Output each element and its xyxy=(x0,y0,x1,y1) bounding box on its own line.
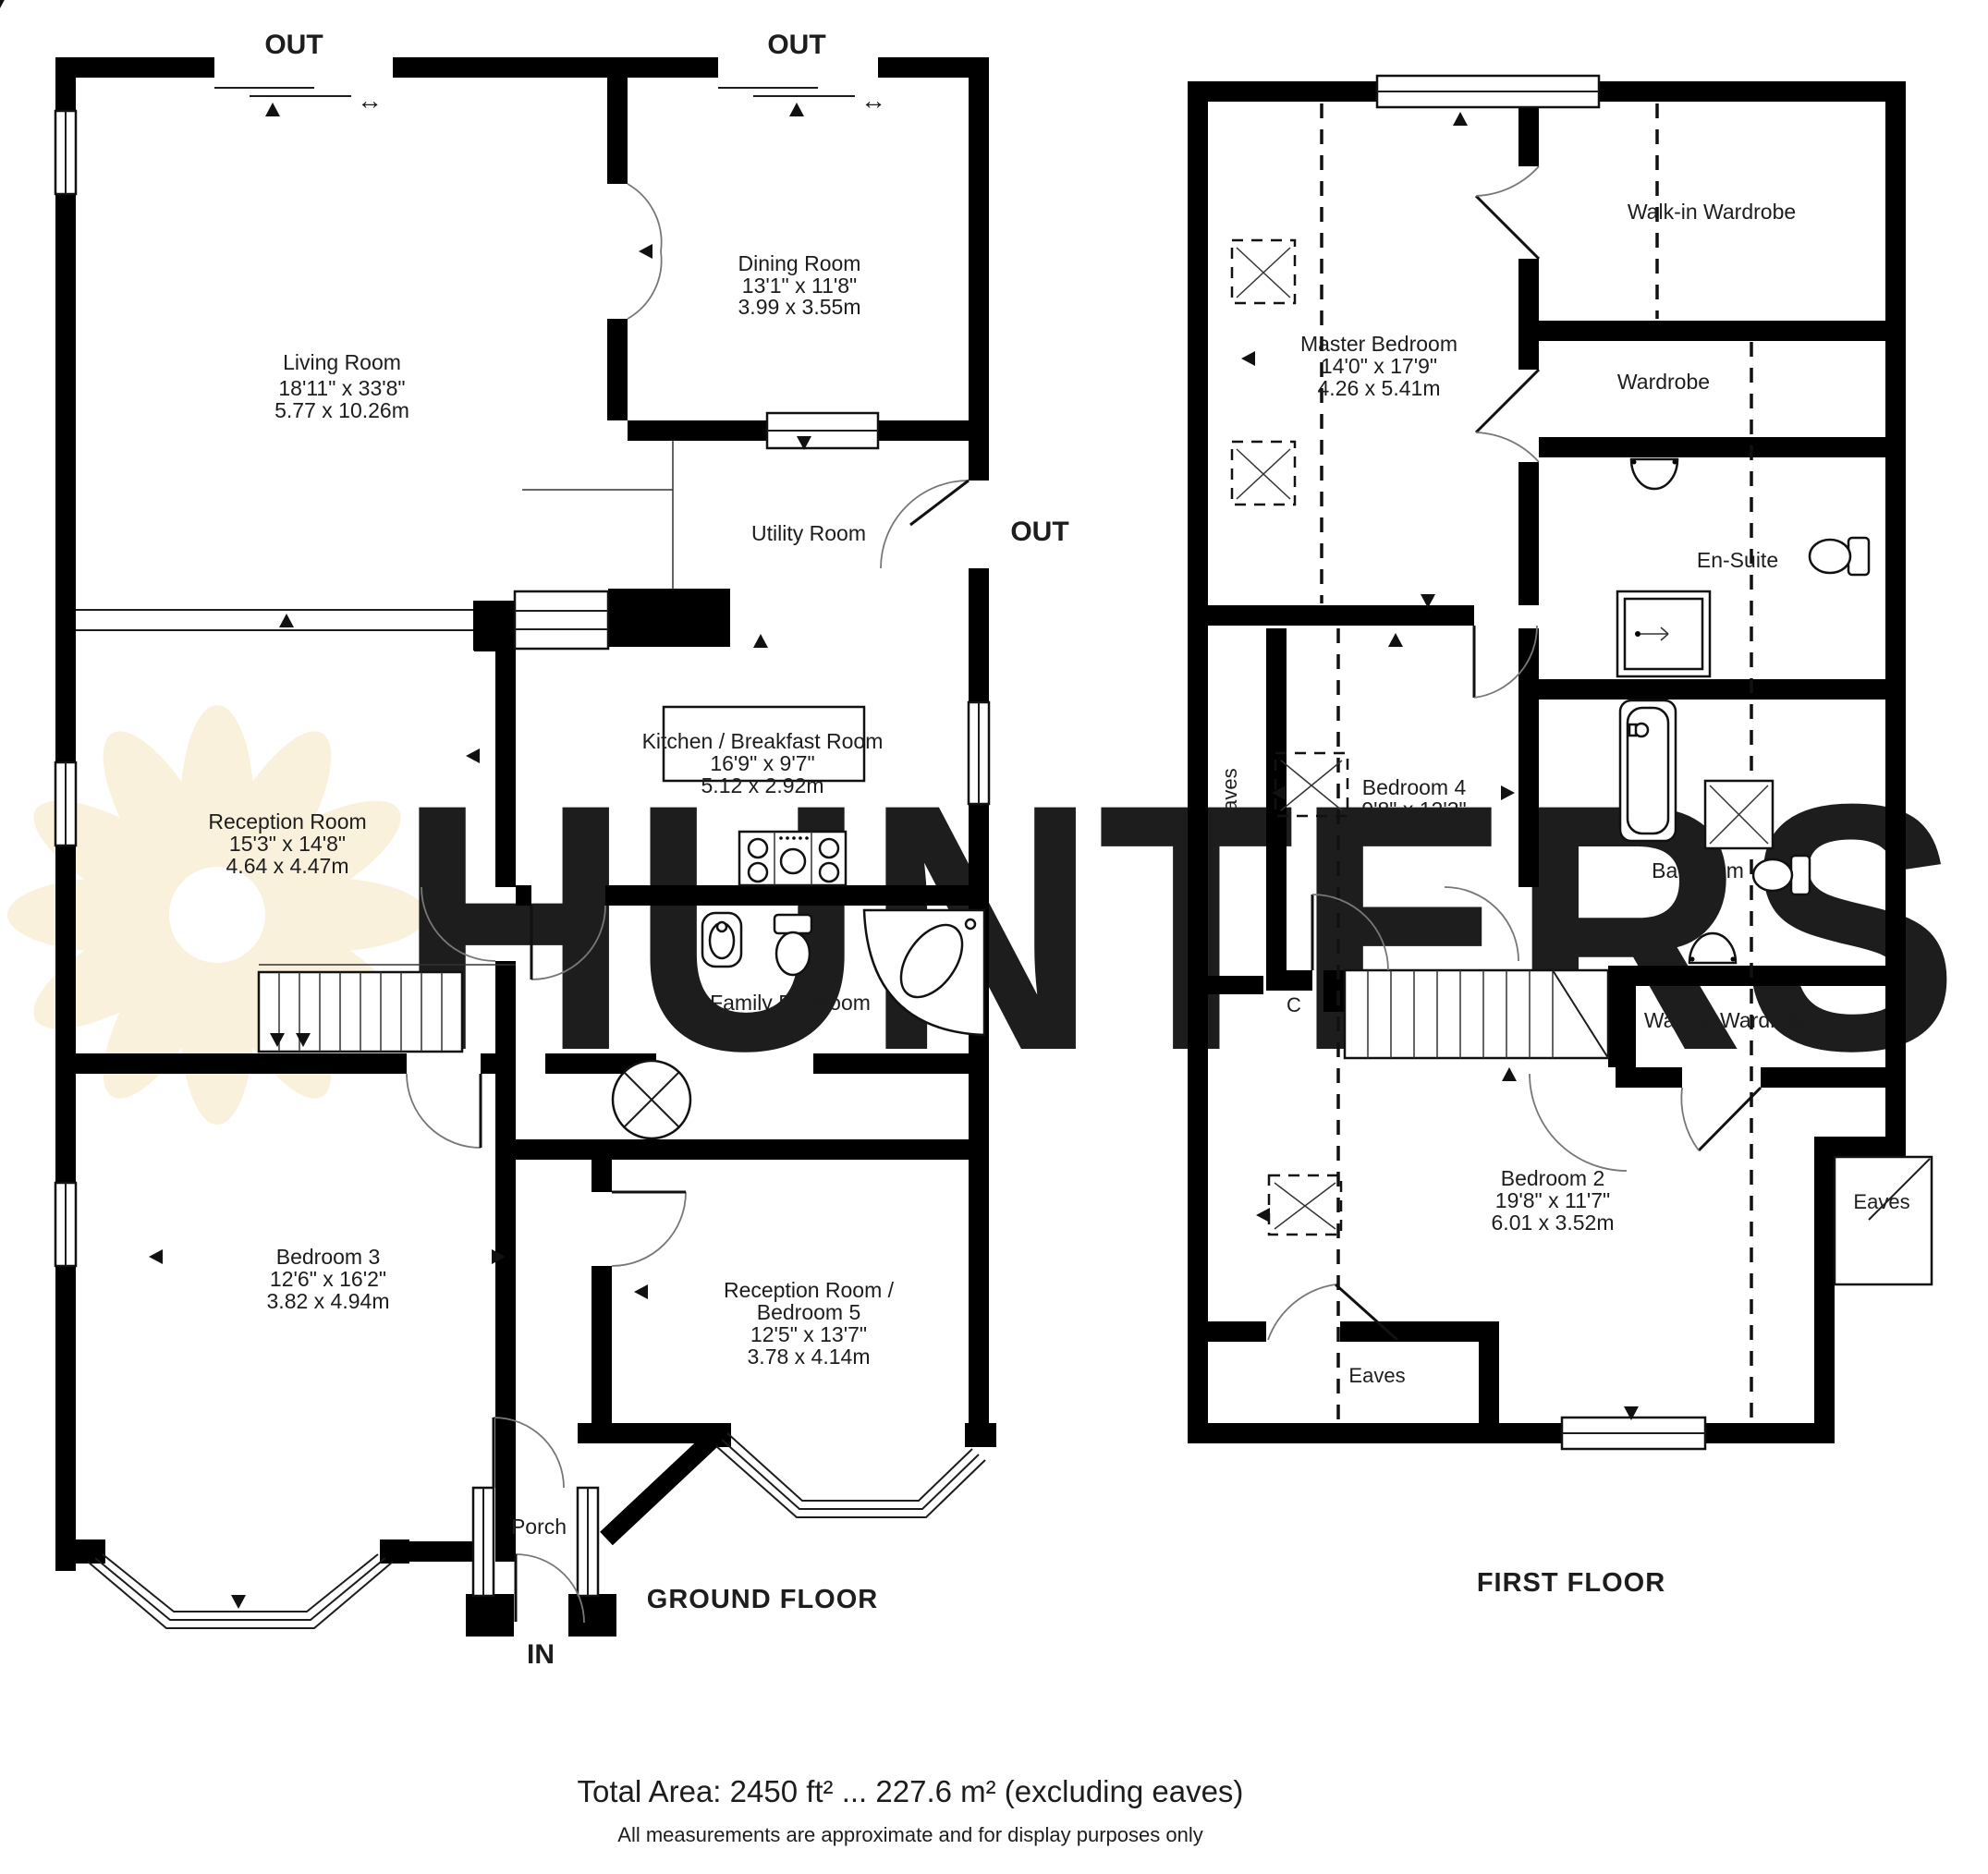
bidet-icon xyxy=(702,913,741,967)
svg-text:Bedroom 3: Bedroom 3 xyxy=(276,1245,381,1269)
extractor-icon xyxy=(613,1061,690,1138)
door-label-out-3: OUT xyxy=(1010,517,1068,547)
svg-text:Reception Room: Reception Room xyxy=(208,809,366,834)
svg-text:Dining Room: Dining Room xyxy=(738,251,861,275)
room-label-bedroom4: Bedroom 4 9'8" x 12'3" 2.93 x 3.75m xyxy=(1353,775,1476,844)
svg-text:14'0" x 17'9": 14'0" x 17'9" xyxy=(1321,354,1437,378)
hob-icon xyxy=(739,832,846,885)
svg-text:9'8" x 12'3": 9'8" x 12'3" xyxy=(1361,797,1466,821)
svg-text:Bedroom 4: Bedroom 4 xyxy=(1362,775,1467,799)
svg-text:15'3" x 14'8": 15'3" x 14'8" xyxy=(229,832,346,856)
toilet-icon xyxy=(774,915,811,975)
eaves-label-bottom: Eaves xyxy=(1348,1364,1405,1387)
svg-text:18'11" x 33'8": 18'11" x 33'8" xyxy=(278,376,405,400)
eaves-label-right: Eaves xyxy=(1853,1190,1909,1213)
svg-text:Reception Room /: Reception Room / xyxy=(724,1278,895,1302)
ensuite-shower-icon xyxy=(1617,591,1710,676)
room-label-bedroom2: Bedroom 2 19'8" x 11'7" 6.01 x 3.52m xyxy=(1492,1166,1615,1235)
svg-text:3.99 x 3.55m: 3.99 x 3.55m xyxy=(738,295,861,319)
ground-floor-title: GROUND FLOOR xyxy=(647,1585,878,1614)
svg-text:12'5" x 13'7": 12'5" x 13'7" xyxy=(750,1322,867,1346)
room-label-reception: Reception Room 15'3" x 14'8" 4.64 x 4.47… xyxy=(208,809,366,878)
svg-text:2.93 x 3.75m: 2.93 x 3.75m xyxy=(1353,820,1476,844)
svg-text:4.64 x 4.47m: 4.64 x 4.47m xyxy=(226,854,349,878)
svg-text:16'9" x 9'7": 16'9" x 9'7" xyxy=(710,751,814,775)
svg-text:Bedroom 2: Bedroom 2 xyxy=(1501,1166,1605,1190)
room-label-family-bathroom: Family Bathroom xyxy=(710,991,871,1015)
svg-text:3.78 x 4.14m: 3.78 x 4.14m xyxy=(748,1345,871,1369)
floorplan-page: HUNTERS xyxy=(0,0,1988,1874)
ensuite-toilet-icon xyxy=(1810,538,1869,575)
door-label-out-2: OUT xyxy=(767,30,825,60)
porch-windows xyxy=(473,1488,598,1596)
room-label-living-room: Living Room 18'11" x 33'8" 5.77 x 10.26m xyxy=(274,350,409,422)
room-label-bedroom3: Bedroom 3 12'6" x 16'2" 3.82 x 4.94m xyxy=(267,1245,390,1313)
svg-text:Bedroom 5: Bedroom 5 xyxy=(757,1300,861,1324)
cupboard-label: C xyxy=(1287,993,1301,1016)
stairs-first xyxy=(1345,970,1608,1058)
room-label-master-bedroom: Master Bedroom 14'0" x 17'9" 4.26 x 5.41… xyxy=(1300,332,1457,400)
slide-arrow-icon: ↔ xyxy=(860,86,886,115)
bathroom-toilet-icon xyxy=(1753,856,1810,894)
bath-icon xyxy=(1620,700,1676,841)
svg-text:5.77 x 10.26m: 5.77 x 10.26m xyxy=(274,398,409,422)
svg-text:5.12 x 2.92m: 5.12 x 2.92m xyxy=(701,773,824,797)
ensuite-sink-icon xyxy=(1631,459,1677,489)
svg-text:3.82 x 4.94m: 3.82 x 4.94m xyxy=(267,1289,390,1313)
bay-window-bed5 xyxy=(716,1433,985,1517)
bay-window-bed3 xyxy=(88,1554,393,1628)
disclaimer-text: All measurements are approximate and for… xyxy=(617,1823,1202,1846)
room-label-ensuite: En-Suite xyxy=(1697,548,1778,572)
first-floor-title: FIRST FLOOR xyxy=(1477,1568,1665,1598)
slide-arrow-icon: ↔ xyxy=(357,86,383,115)
room-label-dining-room: Dining Room 13'1" x 11'8" 3.99 x 3.55m xyxy=(738,251,861,319)
eaves-label-left: Eaves xyxy=(1218,768,1241,824)
svg-text:Living Room: Living Room xyxy=(283,350,401,374)
svg-text:6.01 x 3.52m: 6.01 x 3.52m xyxy=(1492,1211,1615,1235)
svg-text:19'8" x 11'7": 19'8" x 11'7" xyxy=(1495,1188,1610,1212)
room-label-bedroom5: Reception Room / Bedroom 5 12'5" x 13'7"… xyxy=(724,1278,895,1369)
svg-text:12'6" x 16'2": 12'6" x 16'2" xyxy=(270,1267,386,1291)
svg-text:Kitchen / Breakfast Room: Kitchen / Breakfast Room xyxy=(642,729,884,753)
living-reception-opening xyxy=(76,610,473,630)
room-label-porch: Porch xyxy=(511,1515,567,1539)
sliding-door-icons: ↔ ↔ xyxy=(214,86,886,115)
door-label-out-1: OUT xyxy=(264,30,323,60)
eaves-notch-right xyxy=(1835,1157,1932,1284)
room-label-bathroom: Bathroom xyxy=(1652,858,1744,882)
room-label-utility: Utility Room xyxy=(751,521,866,545)
room-label-wardrobe: Wardrobe xyxy=(1617,370,1710,394)
door-label-in: IN xyxy=(527,1639,555,1670)
room-label-walkin-top: Walk-in Wardrobe xyxy=(1628,200,1796,224)
bathroom-shower-icon xyxy=(1705,781,1773,848)
room-label-walkin-lower: Walk-in Wardrobe xyxy=(1644,1008,1812,1032)
total-area-text: Total Area: 2450 ft² ... 227.6 m² (exclu… xyxy=(578,1774,1244,1808)
svg-text:Master Bedroom: Master Bedroom xyxy=(1300,332,1457,356)
svg-text:4.26 x 5.41m: 4.26 x 5.41m xyxy=(1318,376,1441,400)
